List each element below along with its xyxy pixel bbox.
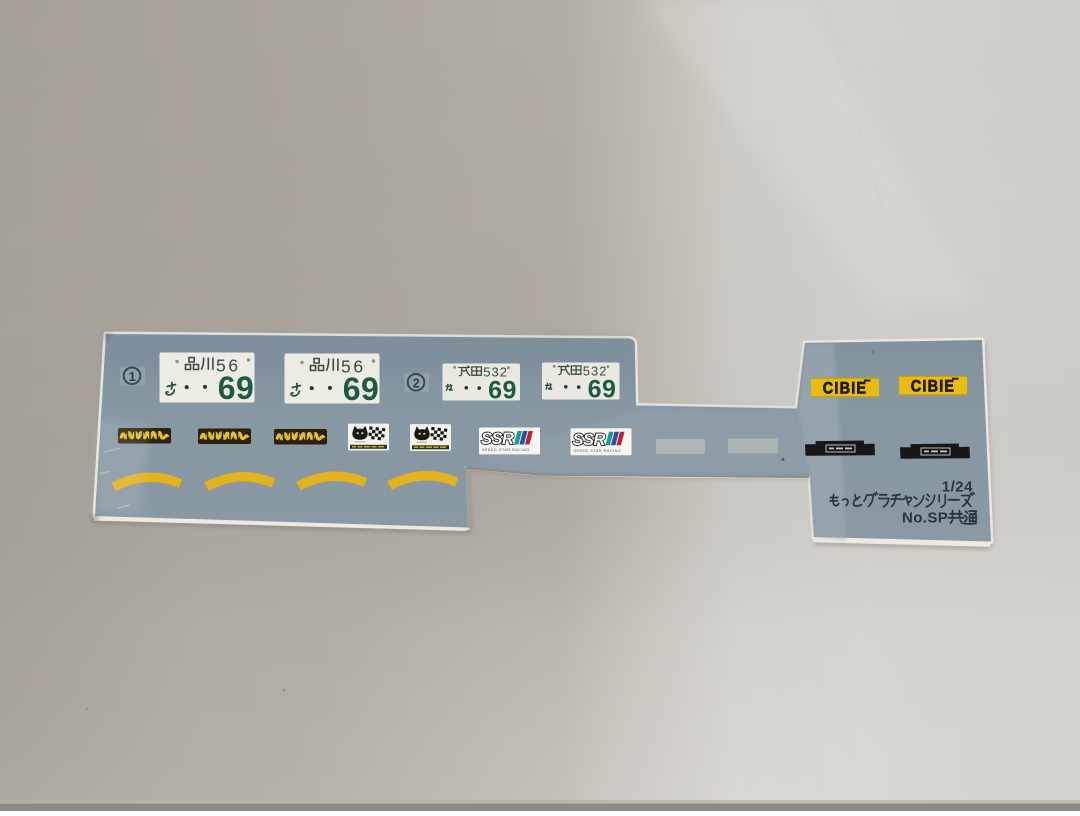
svg-text:2: 2 (413, 376, 420, 390)
svg-text:No.SP: No.SP (902, 510, 948, 527)
svg-text:1/24: 1/24 (942, 479, 973, 496)
svg-text:1: 1 (129, 370, 136, 384)
